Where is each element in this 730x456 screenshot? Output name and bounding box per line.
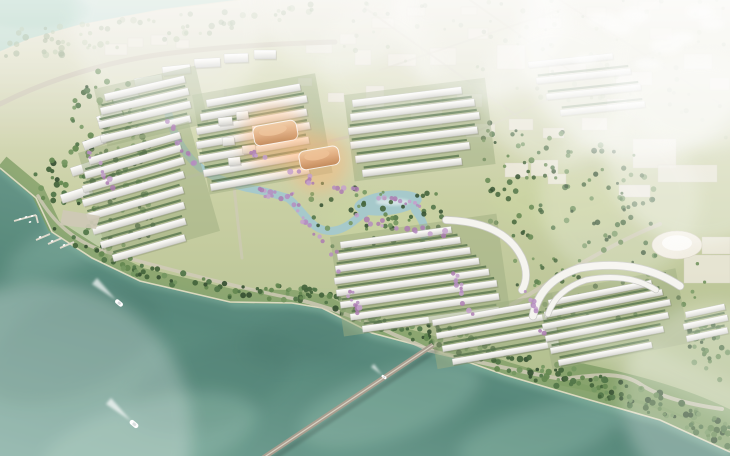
global-veil [0, 0, 730, 456]
haze-overlay [0, 0, 730, 456]
rendering-canvas [0, 0, 730, 456]
aerial-masterplan-rendering [0, 0, 730, 456]
